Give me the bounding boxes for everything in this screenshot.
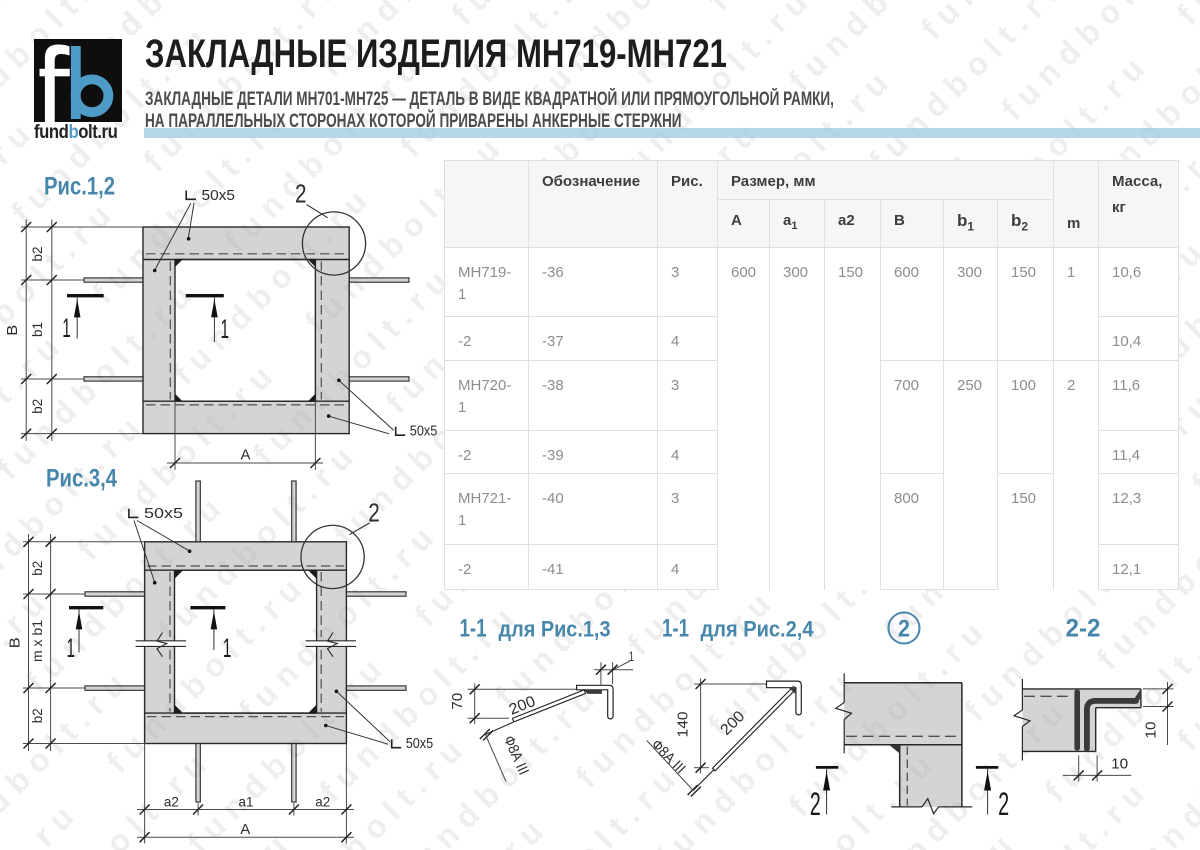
svg-text:10: 10 bbox=[1111, 756, 1128, 773]
svg-text:Рис.3,4: Рис.3,4 bbox=[46, 465, 117, 493]
svg-text:1-1: 1-1 bbox=[662, 615, 689, 643]
svg-text:A: A bbox=[241, 447, 251, 464]
svg-text:140: 140 bbox=[675, 711, 692, 737]
svg-text:200: 200 bbox=[507, 693, 539, 719]
svg-text:1: 1 bbox=[629, 649, 634, 664]
svg-text:b1: b1 bbox=[29, 322, 45, 337]
svg-text:a1: a1 bbox=[239, 795, 254, 810]
svg-text:Рис.1,2: Рис.1,2 bbox=[44, 173, 115, 201]
svg-text:200: 200 bbox=[717, 707, 748, 738]
svg-text:2: 2 bbox=[810, 786, 821, 822]
svg-text:1: 1 bbox=[67, 633, 76, 663]
svg-text:для Рис.1,3: для Рис.1,3 bbox=[499, 617, 611, 642]
svg-text:для Рис.2,4: для Рис.2,4 bbox=[701, 617, 815, 642]
svg-text:50x5: 50x5 bbox=[410, 424, 438, 440]
svg-text:b2: b2 bbox=[29, 246, 45, 261]
svg-text:2: 2 bbox=[898, 616, 910, 643]
svg-text:2: 2 bbox=[368, 498, 380, 528]
svg-text:2: 2 bbox=[295, 179, 307, 209]
svg-text:50x5: 50x5 bbox=[406, 736, 434, 752]
svg-text:10: 10 bbox=[1143, 722, 1160, 739]
svg-text:A: A bbox=[240, 821, 250, 838]
svg-text:b2: b2 bbox=[29, 399, 45, 414]
svg-text:2: 2 bbox=[998, 786, 1009, 822]
svg-text:70: 70 bbox=[449, 693, 466, 710]
svg-text:1: 1 bbox=[62, 313, 71, 343]
svg-text:1-1: 1-1 bbox=[460, 615, 487, 643]
svg-text:1: 1 bbox=[220, 314, 229, 344]
svg-text:Ф8А III: Ф8А III bbox=[500, 733, 532, 777]
svg-text:2-2: 2-2 bbox=[1066, 615, 1101, 643]
svg-text:a2: a2 bbox=[315, 795, 330, 810]
svg-text:B: B bbox=[7, 637, 24, 648]
svg-text:b2: b2 bbox=[29, 708, 45, 723]
svg-text:B: B bbox=[4, 325, 21, 336]
svg-text:50x5: 50x5 bbox=[202, 188, 236, 204]
svg-text:b2: b2 bbox=[29, 560, 45, 575]
svg-text:50x5: 50x5 bbox=[144, 506, 183, 522]
svg-text:1: 1 bbox=[223, 633, 232, 663]
svg-text:a2: a2 bbox=[164, 795, 179, 810]
svg-text:Ф8А III: Ф8А III bbox=[648, 736, 689, 777]
svg-text:m x b1: m x b1 bbox=[29, 620, 45, 662]
